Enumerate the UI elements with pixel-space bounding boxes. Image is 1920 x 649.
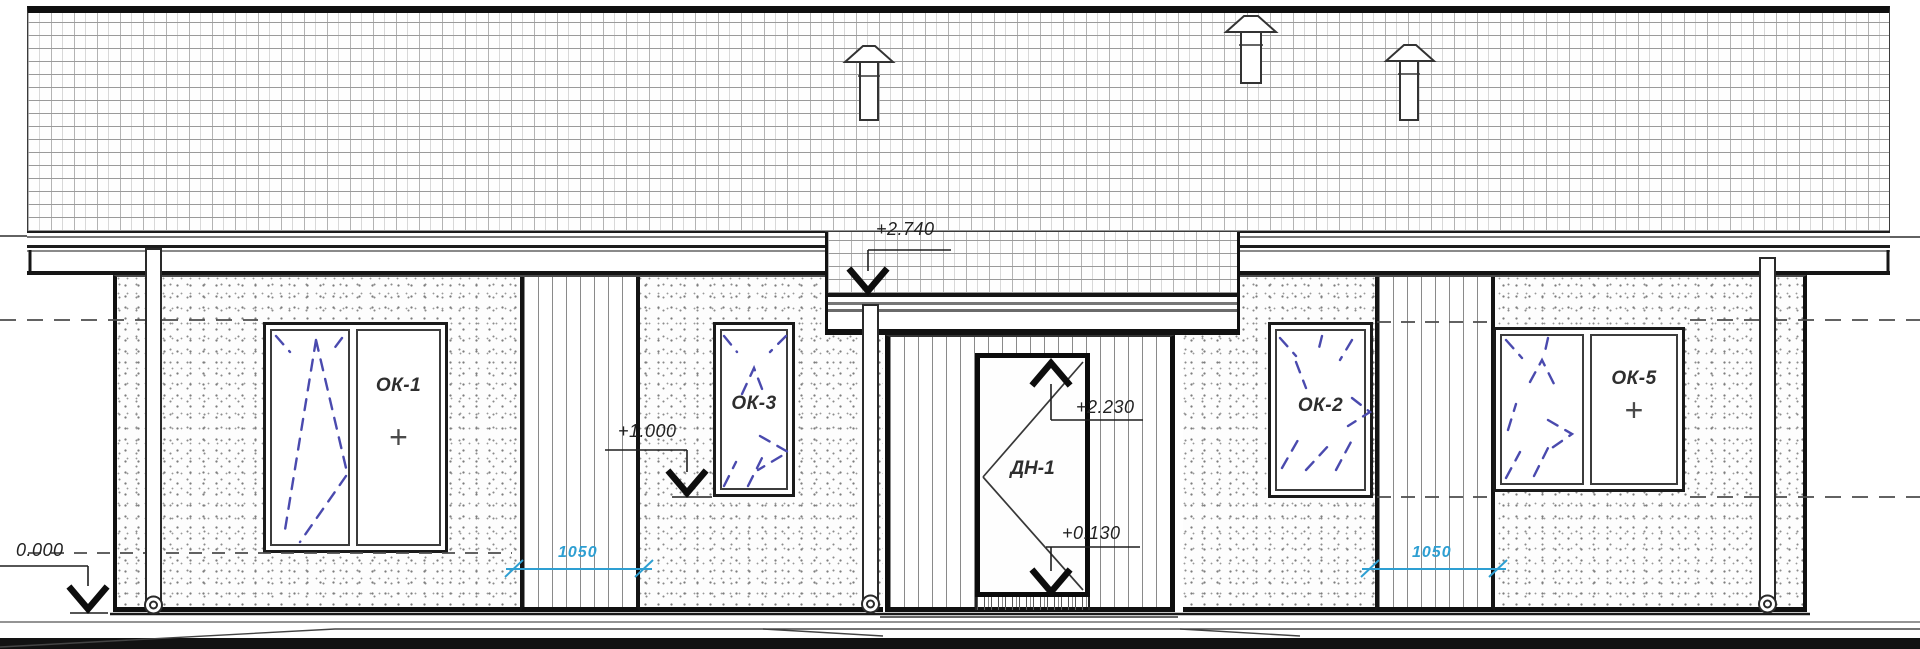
- ground-lines: [0, 614, 1920, 649]
- arrow-porch-threshold: [1034, 572, 1068, 592]
- dimension-left-siding: 1050: [558, 544, 598, 562]
- vent-2: [1226, 16, 1276, 83]
- elevation-mark-door-head: +2.230: [1076, 397, 1135, 418]
- downspout-right: [1759, 258, 1776, 613]
- facade-drawing: ОК-1 + ОК-3 ОК-2 ОК-5 + ДН-1: [0, 0, 1920, 649]
- elevation-mark-canopy-top: +2.740: [876, 219, 935, 240]
- downspout-center: [862, 305, 879, 613]
- glass-opening-marks: [276, 336, 1572, 542]
- vent-1: [845, 46, 893, 120]
- elevation-mark-ground: 0.000: [16, 540, 64, 561]
- elevation-mark-window-sill: +1.000: [618, 421, 677, 442]
- arrow-door-head: [1034, 363, 1068, 383]
- elevation-mark-porch-threshold: +0.130: [1062, 523, 1121, 544]
- door-swing-lines: [983, 362, 1083, 590]
- eave-end-caps: [30, 250, 1888, 274]
- vent-3: [1386, 45, 1434, 120]
- downspout-left: [145, 249, 162, 614]
- arrow-window-sill: [670, 473, 704, 493]
- arrow-canopy-top: [851, 271, 885, 291]
- drawing-linework: [0, 0, 1920, 649]
- arrow-ground-level: [71, 589, 105, 609]
- dimension-lines: [505, 560, 1507, 577]
- dimension-right-siding: 1050: [1412, 544, 1452, 562]
